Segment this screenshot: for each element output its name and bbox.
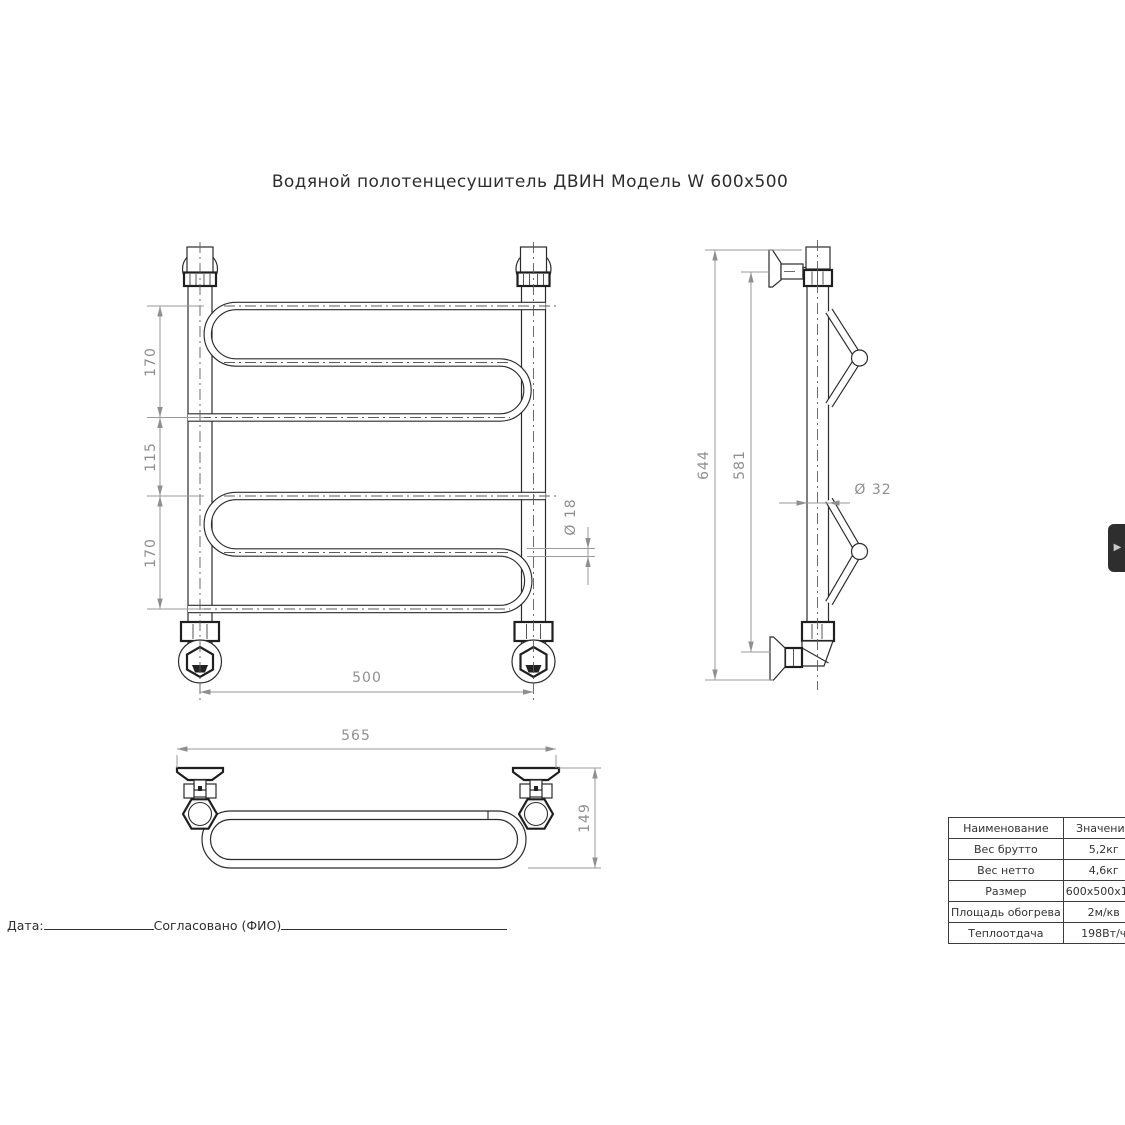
dim-side-collector-diameter: Ø 32 [841,482,905,498]
dim-side-mount-distance: 581 [732,433,748,497]
dim-side-overall-height: 644 [696,433,712,497]
spec-value: 4,6кг [1063,860,1125,881]
date-blank-line [44,916,154,930]
side-bottom-mount [770,622,834,680]
spec-name: Теплоотдача [949,923,1064,944]
spec-name: Вес брутто [949,839,1064,860]
spec-row-gross-weight: Вес брутто 5,2кг [949,839,1125,860]
spec-name: Вес нетто [949,860,1064,881]
approval-line: Дата:Согласовано (ФИО) [7,916,507,933]
spec-value: 198Вт/ч [1063,923,1125,944]
date-label: Дата: [7,918,44,933]
plan-view [177,746,601,868]
expand-panel-button[interactable]: ▶ [1108,524,1125,572]
bottom-right-fitting [512,622,555,683]
spec-value: 5,2кг [1063,839,1125,860]
spec-name: Площадь обогрева [949,902,1064,923]
spec-value: 2м/кв [1063,902,1125,923]
side-view [705,240,868,690]
dim-front-top-section: 170 [143,330,159,394]
dim-front-tube-diameter: Ø 18 [563,485,579,549]
spec-name: Размер [949,881,1064,902]
front-centerlines [179,242,557,701]
dim-front-middle-section: 115 [143,425,159,489]
side-upper-loop [829,311,868,405]
chevron-right-icon: ▶ [1114,543,1122,553]
spec-header-row: Наименование Значение [949,818,1125,839]
dim-front-bottom-section: 170 [143,521,159,585]
dim-plan-overall-width: 565 [324,728,388,744]
front-view [147,242,595,701]
approved-label: Согласовано (ФИО) [154,918,282,933]
spec-header-value: Значение [1063,818,1125,839]
technical-drawing [0,0,1125,1125]
spec-value: 600x500x150 [1063,881,1125,902]
spec-table: Наименование Значение Вес брутто 5,2кг В… [948,817,1125,944]
spec-row-net-weight: Вес нетто 4,6кг [949,860,1125,881]
plan-coil-inner [211,820,518,860]
spec-row-heat-output: Теплоотдача 198Вт/ч [949,923,1125,944]
plan-right-mount [513,768,559,829]
side-lower-loop [829,500,868,603]
signature-blank-line [281,916,507,930]
serpentine-coil [188,306,546,609]
side-top-mount [769,247,832,287]
drawing-title: Водяной полотенцесушитель ДВИН Модель W … [180,172,880,192]
spec-row-size: Размер 600x500x150 [949,881,1125,902]
spec-row-heating-area: Площадь обогрева 2м/кв [949,902,1125,923]
dim-front-axes-width: 500 [335,670,399,686]
dim-plan-depth: 149 [577,786,593,850]
spec-header-name: Наименование [949,818,1064,839]
bottom-left-fitting [179,622,222,683]
